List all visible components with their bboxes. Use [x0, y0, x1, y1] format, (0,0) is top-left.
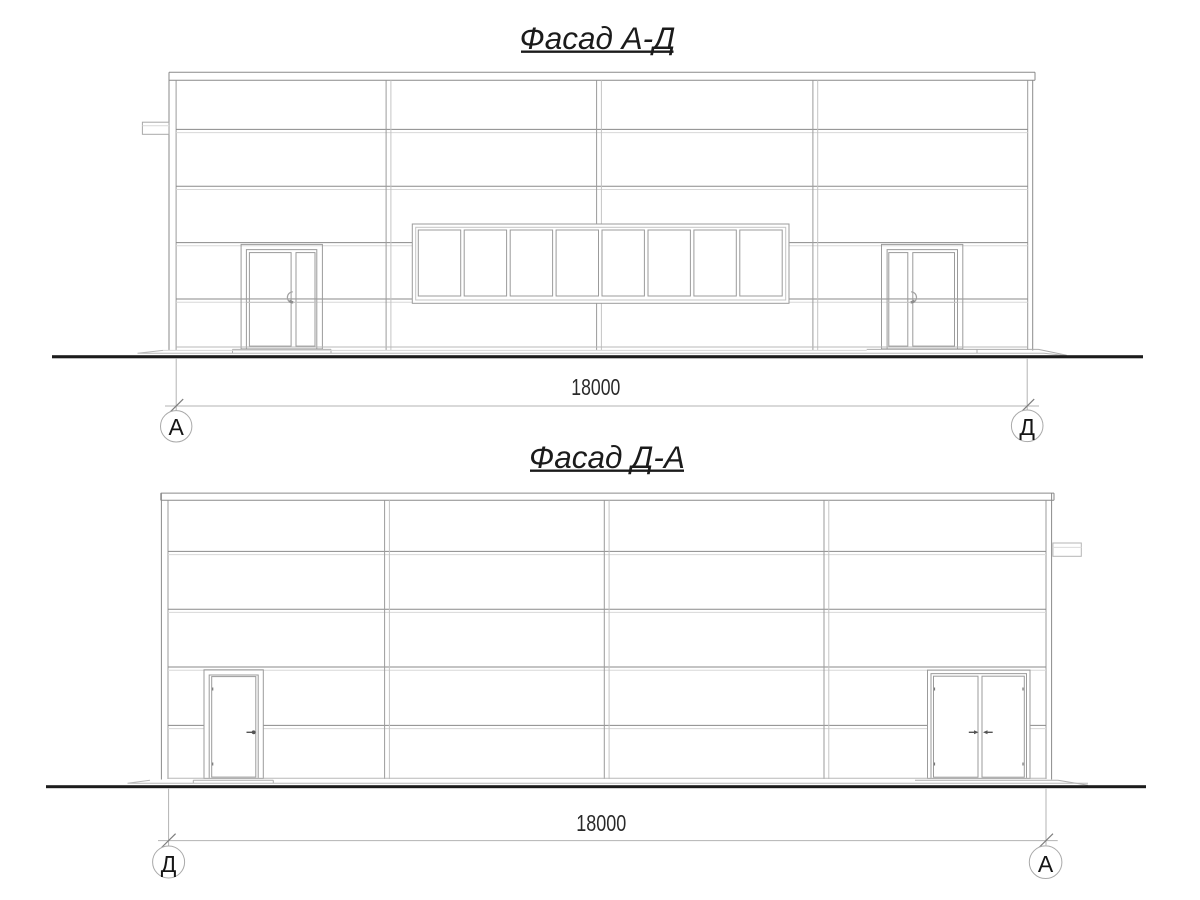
- svg-text:А: А: [169, 414, 185, 440]
- svg-text:Д: Д: [161, 851, 177, 877]
- svg-text:18000: 18000: [576, 810, 626, 836]
- svg-text:Д: Д: [1019, 414, 1035, 440]
- svg-text:А: А: [1038, 851, 1054, 877]
- svg-text:18000: 18000: [571, 374, 620, 400]
